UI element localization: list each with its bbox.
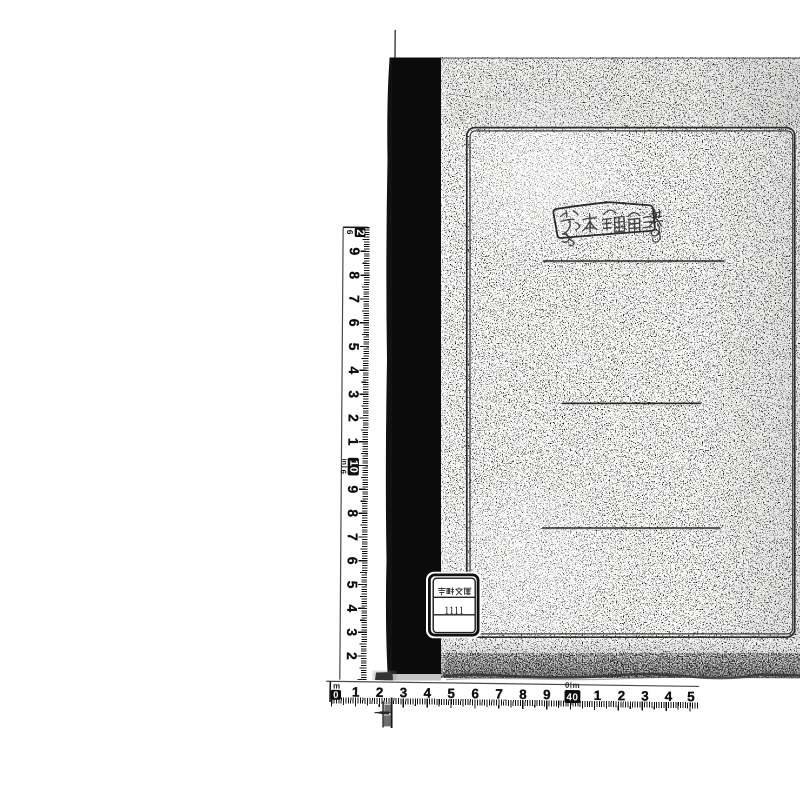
svg-text:6: 6 [345, 230, 355, 235]
svg-text:6: 6 [345, 557, 361, 565]
svg-text:5: 5 [346, 343, 362, 351]
svg-text:5: 5 [687, 689, 695, 704]
svg-text:8: 8 [345, 509, 361, 517]
svg-text:1111: 1111 [444, 605, 464, 617]
svg-text:3: 3 [400, 685, 408, 700]
svg-text:4: 4 [665, 689, 673, 704]
svg-text:4: 4 [346, 366, 362, 374]
svg-text:9: 9 [543, 687, 551, 702]
svg-text:9: 9 [347, 247, 363, 255]
svg-text:6: 6 [339, 469, 348, 474]
svg-text:7: 7 [346, 295, 362, 303]
svg-text:4: 4 [344, 604, 360, 612]
svg-text:9: 9 [345, 485, 361, 493]
svg-text:m: m [572, 681, 579, 690]
svg-text:7: 7 [495, 686, 503, 701]
svg-text:6: 6 [346, 319, 362, 327]
svg-text:40: 40 [566, 692, 578, 703]
svg-text:8: 8 [519, 687, 527, 702]
svg-text:8: 8 [347, 271, 363, 279]
svg-text:5: 5 [344, 581, 360, 589]
svg-text:3: 3 [641, 689, 649, 704]
svg-text:2: 2 [346, 414, 362, 422]
svg-text:5: 5 [447, 686, 455, 701]
svg-text:7: 7 [345, 533, 361, 541]
svg-text:2: 2 [344, 652, 360, 660]
svg-text:2: 2 [618, 688, 626, 703]
svg-text:2: 2 [376, 685, 384, 700]
svg-text:1: 1 [594, 688, 602, 703]
svg-text:10: 10 [347, 460, 359, 473]
svg-text:1: 1 [345, 438, 361, 446]
svg-text:6: 6 [471, 686, 479, 701]
svg-text:1: 1 [352, 684, 360, 699]
svg-text:0: 0 [333, 690, 338, 701]
svg-text:3: 3 [344, 628, 360, 636]
svg-text:4: 4 [424, 685, 432, 700]
svg-text:in: in [340, 459, 347, 465]
svg-text:3: 3 [346, 390, 362, 398]
svg-text:0: 0 [565, 681, 570, 690]
